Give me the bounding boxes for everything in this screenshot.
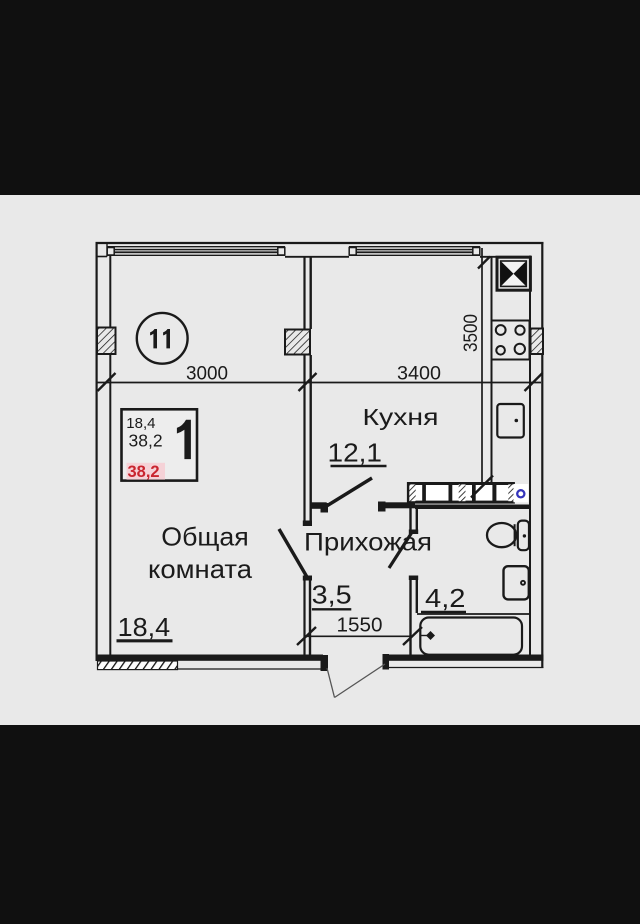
svg-text:1550: 1550 — [337, 615, 383, 637]
svg-text:Прихожая: Прихожая — [304, 529, 432, 557]
svg-text:3500: 3500 — [460, 314, 482, 352]
svg-text:комната: комната — [148, 554, 253, 584]
svg-text:12,1: 12,1 — [328, 437, 383, 467]
svg-text:Общая: Общая — [161, 522, 249, 552]
svg-text:Кухня: Кухня — [363, 404, 439, 430]
svg-text:3000: 3000 — [186, 364, 228, 385]
svg-text:18,4: 18,4 — [118, 612, 171, 642]
svg-text:4,2: 4,2 — [425, 583, 466, 613]
svg-text:3400: 3400 — [397, 364, 441, 385]
svg-text:38,2: 38,2 — [128, 463, 160, 481]
svg-text:38,2: 38,2 — [129, 430, 163, 450]
svg-text:3,5: 3,5 — [312, 579, 352, 609]
